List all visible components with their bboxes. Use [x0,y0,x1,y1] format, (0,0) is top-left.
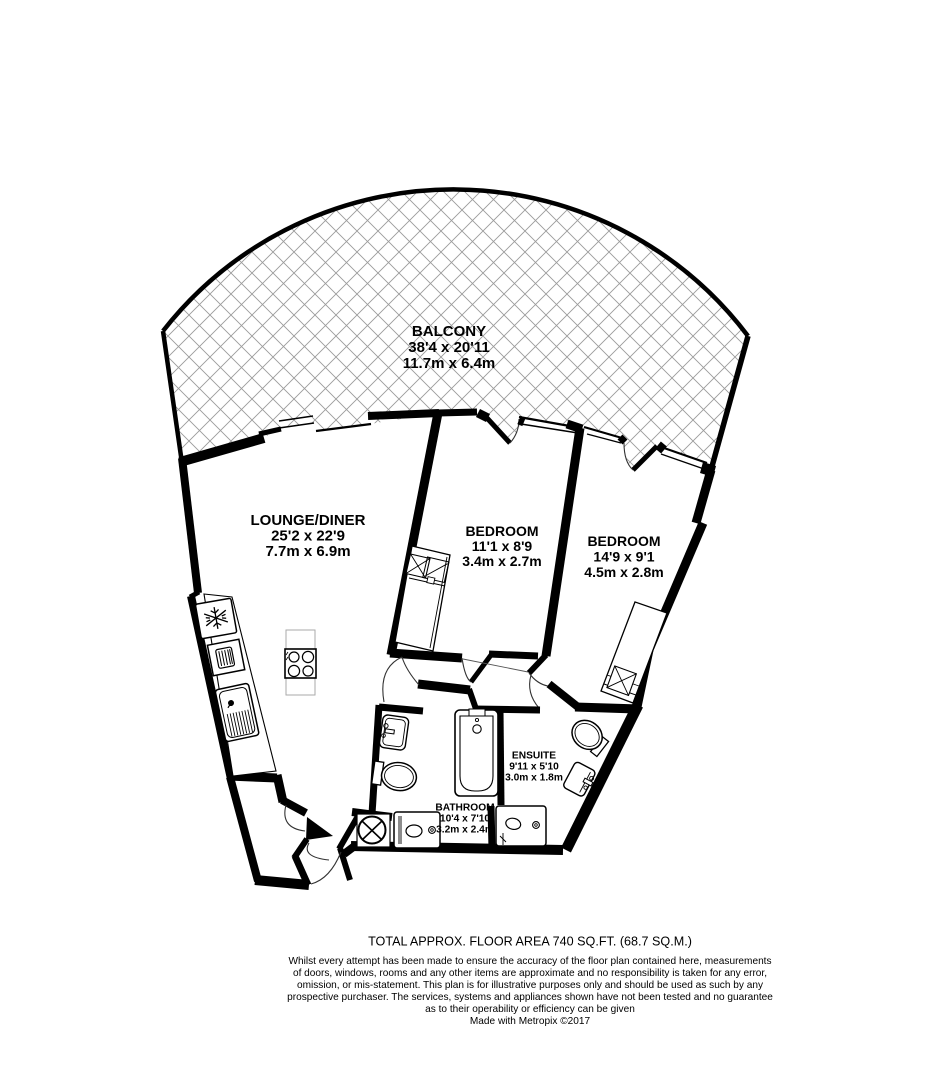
svg-text:4.5m x 2.8m: 4.5m x 2.8m [584,564,663,580]
svg-text:prospective purchaser. The ser: prospective purchaser. The services, sys… [287,992,773,1003]
svg-text:as to their operability or eff: as to their operability or efficiency ca… [425,1004,635,1015]
svg-text:9'11 x 5'10: 9'11 x 5'10 [509,762,559,773]
svg-text:LOUNGE/DINER: LOUNGE/DINER [250,512,365,529]
svg-text:38'4 x 20'11: 38'4 x 20'11 [408,339,489,356]
svg-text:BALCONY: BALCONY [412,323,486,340]
svg-text:omission, or mis-statement. Th: omission, or mis-statement. This plan is… [297,980,764,991]
svg-text:TOTAL APPROX. FLOOR AREA 740 S: TOTAL APPROX. FLOOR AREA 740 SQ.FT. (68.… [368,935,692,949]
svg-text:of doors, windows, rooms and a: of doors, windows, rooms and any other i… [293,968,767,979]
svg-text:ENSUITE: ENSUITE [512,751,556,762]
svg-text:14'9 x 9'1: 14'9 x 9'1 [593,549,654,565]
svg-text:BATHROOM: BATHROOM [435,803,494,814]
svg-text:Whilst every attempt has been: Whilst every attempt has been made to en… [288,956,771,967]
svg-text:BEDROOM: BEDROOM [465,523,538,539]
svg-text:25'2 x 22'9: 25'2 x 22'9 [271,528,345,545]
svg-text:3.4m x 2.7m: 3.4m x 2.7m [462,553,541,569]
svg-text:11'1 x 8'9: 11'1 x 8'9 [472,538,533,554]
svg-text:BEDROOM: BEDROOM [587,533,660,549]
svg-text:Made with Metropix ©2017: Made with Metropix ©2017 [470,1016,591,1027]
svg-text:10'4 x 7'10: 10'4 x 7'10 [440,814,491,825]
svg-text:11.7m x 6.4m: 11.7m x 6.4m [403,355,496,372]
svg-text:7.7m x 6.9m: 7.7m x 6.9m [265,543,350,560]
svg-text:3.2m x 2.4m: 3.2m x 2.4m [436,825,494,836]
svg-text:3.0m x 1.8m: 3.0m x 1.8m [505,773,563,784]
